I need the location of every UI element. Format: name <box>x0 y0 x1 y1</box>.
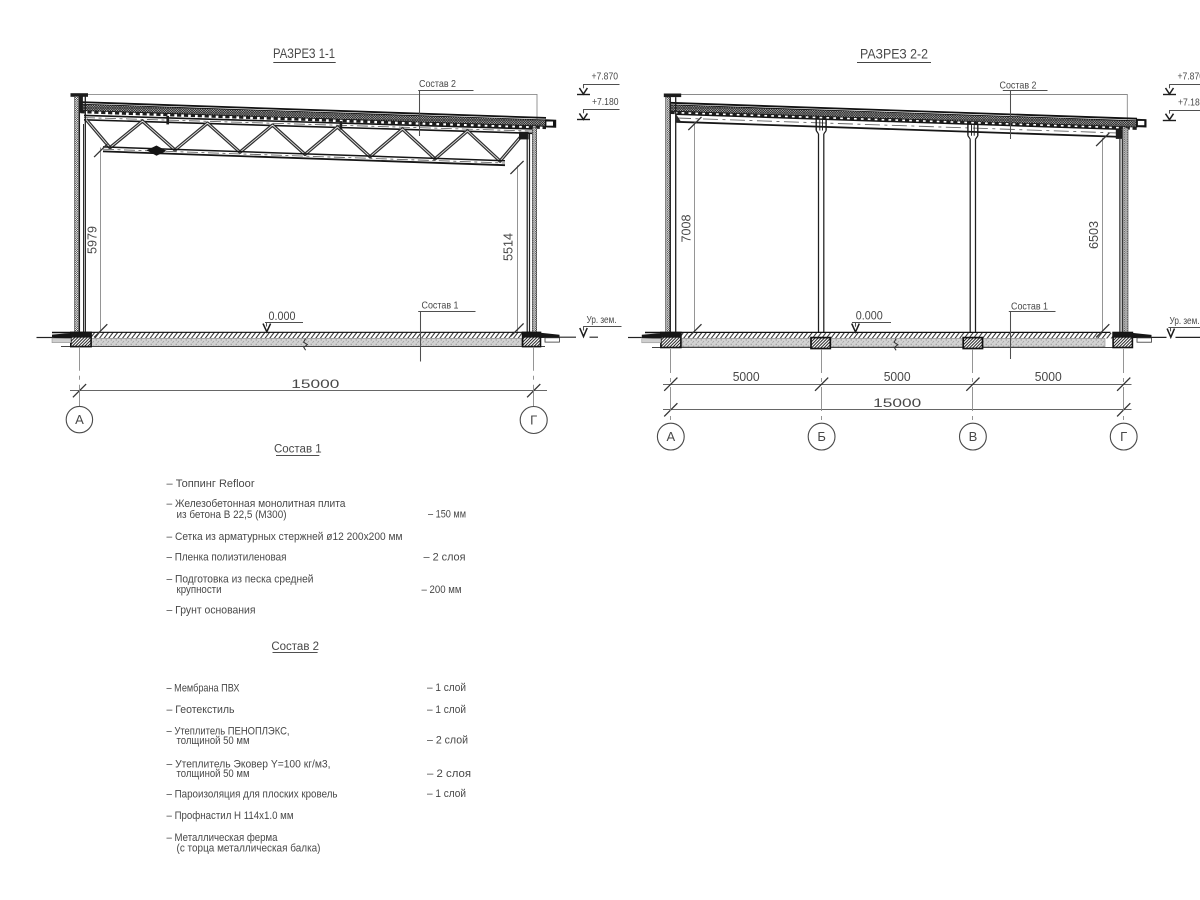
svg-text:6503: 6503 <box>1087 221 1101 249</box>
svg-text:– Топпинг Refloor: – Топпинг Refloor <box>167 478 255 490</box>
svg-text:5000: 5000 <box>1035 370 1062 384</box>
svg-text:+7.870: +7.870 <box>1178 71 1200 83</box>
svg-text:Состав 1: Состав 1 <box>274 444 322 456</box>
svg-text:Состав 2: Состав 2 <box>271 641 319 653</box>
svg-text:7008: 7008 <box>680 214 694 242</box>
svg-text:крупности: крупности <box>177 584 222 596</box>
svg-text:– Геотекстиль: – Геотекстиль <box>167 704 235 716</box>
svg-text:– 2 слоя: – 2 слоя <box>427 768 471 780</box>
svg-text:Г: Г <box>530 413 537 428</box>
svg-text:А: А <box>75 412 84 427</box>
svg-text:А: А <box>666 429 675 444</box>
svg-text:(с торца металлическая балка): (с торца металлическая балка) <box>177 842 321 854</box>
svg-text:РАЗРЕЗ 1-1: РАЗРЕЗ 1-1 <box>273 46 335 61</box>
svg-text:– Пароизоляция для плоских кро: – Пароизоляция для плоских кровель <box>167 788 338 800</box>
svg-text:В: В <box>969 429 978 444</box>
svg-text:– 150 мм: – 150 мм <box>428 509 466 521</box>
svg-text:5000: 5000 <box>884 370 911 384</box>
svg-text:РАЗРЕЗ 2-2: РАЗРЕЗ 2-2 <box>860 47 928 62</box>
svg-text:0.000: 0.000 <box>269 309 296 323</box>
svg-text:толщиной 50 мм: толщиной 50 мм <box>177 735 250 747</box>
svg-text:5514: 5514 <box>502 233 516 261</box>
svg-text:15000: 15000 <box>873 396 921 410</box>
svg-text:Г: Г <box>1120 429 1127 444</box>
svg-text:из бетона В 22,5 (М300): из бетона В 22,5 (М300) <box>177 509 287 521</box>
svg-text:Ур. зем.: Ур. зем. <box>587 315 617 326</box>
svg-text:+7.180: +7.180 <box>1178 96 1200 108</box>
svg-text:– 200 мм: – 200 мм <box>422 584 462 596</box>
svg-text:5979: 5979 <box>86 226 100 254</box>
svg-text:+7.870: +7.870 <box>592 71 619 83</box>
svg-text:– 2 слоя: – 2 слоя <box>424 551 466 563</box>
svg-text:– 1 слой: – 1 слой <box>427 682 466 694</box>
svg-text:Состав 1: Состав 1 <box>422 299 459 311</box>
svg-text:– Профнастил Н 114х1.0 мм: – Профнастил Н 114х1.0 мм <box>167 810 294 822</box>
svg-text:– 2 слой: – 2 слой <box>427 735 468 747</box>
svg-text:– Грунт основания: – Грунт основания <box>167 605 256 617</box>
svg-text:15000: 15000 <box>291 377 339 391</box>
svg-text:Состав 1: Состав 1 <box>1011 300 1048 312</box>
svg-text:+7.180: +7.180 <box>592 96 619 108</box>
svg-text:– Пленка полиэтиленовая: – Пленка полиэтиленовая <box>167 552 287 564</box>
svg-text:толщиной 50 мм: толщиной 50 мм <box>177 768 250 780</box>
svg-text:Б: Б <box>817 429 826 444</box>
svg-text:0.000: 0.000 <box>856 309 883 323</box>
svg-text:– 1 слой: – 1 слой <box>427 788 466 800</box>
svg-text:Состав 2: Состав 2 <box>1000 80 1037 92</box>
svg-text:– Мембрана ПВХ: – Мембрана ПВХ <box>167 682 240 694</box>
svg-text:Ур. зем.: Ур. зем. <box>1170 316 1200 327</box>
svg-text:Состав 2: Состав 2 <box>419 78 456 90</box>
svg-text:– Сетка из арматурных стержней: – Сетка из арматурных стержней ø12 200х2… <box>167 531 403 543</box>
svg-text:5000: 5000 <box>733 370 760 384</box>
svg-text:– 1 слой: – 1 слой <box>427 704 466 716</box>
